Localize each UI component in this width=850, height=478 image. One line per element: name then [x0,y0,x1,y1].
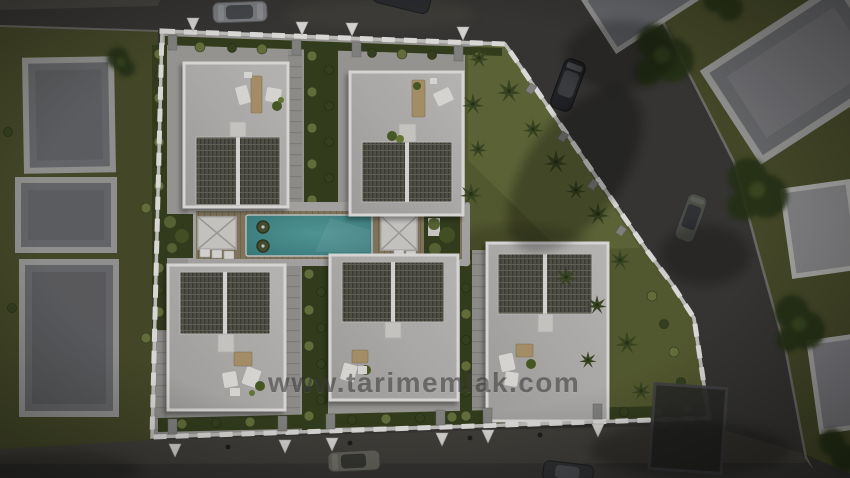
aerial-site-plan-render: www.tarimemlak.com [0,0,850,478]
site-plan-canvas [0,0,850,478]
vignette-overlay [0,0,850,478]
